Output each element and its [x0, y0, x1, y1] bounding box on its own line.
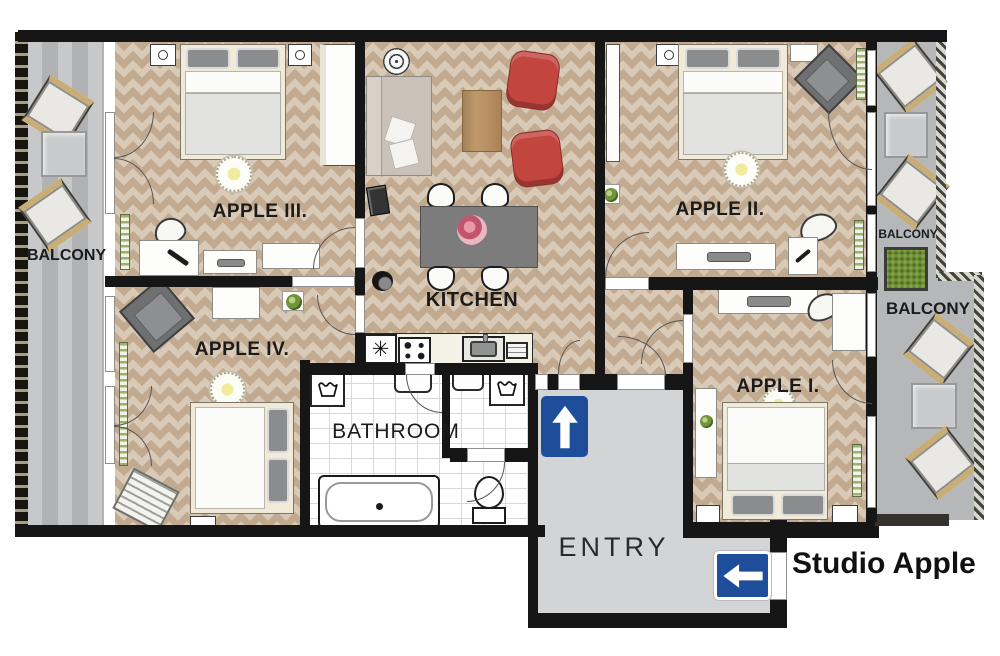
left-arrow-sign — [714, 551, 771, 600]
shelf — [262, 243, 320, 269]
wardrobe — [320, 44, 356, 166]
desk — [718, 289, 818, 314]
wall — [450, 448, 467, 462]
wall — [442, 368, 450, 458]
radiator — [854, 220, 864, 270]
balcony-table — [884, 112, 928, 158]
nightstand — [832, 505, 858, 523]
shelf — [695, 388, 717, 478]
up-arrow-sign — [541, 396, 588, 457]
balcony-railing — [15, 32, 28, 537]
room-label-kitchen: KITCHEN — [392, 289, 552, 312]
tray — [707, 252, 751, 262]
table — [212, 287, 260, 319]
potted-plant-icon — [604, 188, 618, 202]
plant-stand — [282, 291, 304, 311]
room-label-apple-iv: APPLE IV. — [162, 339, 322, 361]
tv — [366, 185, 390, 217]
sofa — [366, 76, 432, 176]
nightstand — [288, 44, 312, 66]
balcony-edge — [875, 514, 949, 526]
fridge-icon: ✳ — [372, 337, 390, 362]
armchair-seat — [805, 58, 850, 103]
window — [105, 296, 115, 372]
ceiling-light-icon — [383, 48, 410, 75]
microwave — [506, 342, 528, 359]
nightstand — [150, 44, 176, 66]
radiator — [852, 444, 862, 497]
wall — [595, 42, 605, 383]
kitchen-sink — [462, 336, 505, 362]
mattress — [683, 71, 783, 93]
potted-plant-icon — [286, 294, 302, 310]
dresser — [203, 250, 257, 274]
double-bed — [190, 402, 294, 514]
red-armchair — [504, 49, 561, 112]
sofa-pillow — [388, 138, 420, 170]
planter-box — [884, 247, 928, 291]
potted-plant-icon — [700, 415, 713, 428]
radiator — [856, 48, 866, 100]
room-label-apple-iii: APPLE III. — [170, 201, 350, 223]
coffee-table — [462, 90, 502, 152]
window — [867, 50, 876, 106]
pillow — [236, 48, 280, 69]
dining-table — [420, 206, 538, 268]
double-bed — [722, 402, 828, 520]
door-opening — [683, 314, 693, 363]
nightstand — [696, 505, 720, 523]
door-knob-icon — [372, 271, 393, 291]
toilet-tank — [472, 507, 506, 524]
mattress — [727, 407, 825, 467]
wall — [355, 42, 365, 218]
red-armchair — [509, 128, 565, 189]
wardrobe — [606, 44, 620, 162]
washing-machine — [489, 370, 525, 406]
room-label-bathroom: BATHROOM — [316, 420, 476, 444]
wall — [528, 613, 787, 628]
window — [867, 293, 876, 357]
plan-title: Studio Apple — [792, 547, 998, 581]
wall — [18, 30, 947, 42]
stove — [398, 337, 431, 364]
fridge: ✳ — [364, 334, 397, 364]
door-opening — [535, 374, 548, 390]
wall — [580, 374, 617, 390]
desk-lamp-icon — [167, 249, 190, 267]
door-opening — [292, 276, 355, 287]
pillow — [781, 494, 825, 516]
double-bed — [678, 44, 788, 160]
wall — [548, 374, 558, 390]
dining-chair — [427, 183, 455, 208]
wall — [300, 360, 310, 527]
wall — [505, 448, 532, 462]
room-label-balcony-left: BALCONY — [24, 247, 109, 265]
balcony-table — [911, 383, 957, 429]
bathtub-inner — [325, 482, 433, 522]
desk-lamp-icon — [795, 249, 811, 264]
desk — [676, 243, 776, 270]
room-label-balcony-right: BALCONY — [878, 299, 978, 319]
room-label-balcony-top-right: BALCONY — [876, 227, 940, 241]
pillow — [731, 494, 775, 516]
wall — [15, 525, 310, 537]
sofa-arm — [367, 77, 382, 175]
window — [867, 214, 876, 272]
wall — [355, 333, 365, 365]
sink-basin — [470, 341, 497, 357]
floor-plan: ✳ — [0, 0, 1000, 656]
speaker-icon — [158, 50, 168, 60]
door-opening — [617, 374, 665, 390]
blanket — [683, 93, 783, 155]
speaker-icon — [295, 50, 305, 60]
double-bed — [180, 44, 286, 160]
balcony-railing-zigzag — [936, 42, 946, 278]
up-arrow-icon — [548, 403, 582, 451]
door-opening — [355, 218, 365, 268]
door-opening — [355, 295, 365, 333]
wall — [770, 520, 787, 552]
washing-machine — [310, 371, 345, 407]
mattress — [195, 407, 265, 509]
pillow — [685, 48, 730, 69]
pillow — [267, 408, 289, 453]
pillow — [267, 458, 289, 503]
bathtub — [318, 475, 440, 529]
pillow — [736, 48, 781, 69]
blanket — [727, 463, 825, 491]
room-label-apple-i: APPLE I. — [698, 376, 858, 398]
radiator — [120, 214, 130, 270]
tray — [747, 296, 791, 307]
wall — [355, 268, 365, 295]
room-label-apple-ii: APPLE II. — [640, 199, 800, 221]
door-opening — [558, 374, 580, 390]
door-opening — [467, 448, 505, 462]
door-opening — [605, 277, 649, 290]
mattress — [185, 71, 281, 93]
room-label-entry: ENTRY — [533, 532, 695, 563]
balcony-table — [41, 131, 87, 177]
window — [867, 416, 876, 508]
speaker-icon — [664, 50, 674, 60]
desk — [139, 240, 199, 276]
side-desk — [832, 293, 866, 351]
dining-chair — [481, 183, 509, 208]
left-arrow-icon — [721, 560, 765, 592]
wall — [300, 525, 545, 537]
faucet-icon — [376, 503, 383, 510]
wall — [683, 283, 693, 314]
pillow — [186, 48, 230, 69]
tray — [217, 259, 245, 267]
door-opening — [405, 363, 435, 375]
entry-door — [770, 552, 787, 600]
chandelier-icon — [216, 156, 252, 192]
side-desk — [788, 237, 818, 275]
blanket — [185, 93, 281, 155]
flower-centerpiece — [457, 215, 487, 245]
chandelier-icon — [724, 152, 759, 187]
faucet-icon — [483, 334, 488, 342]
laundry-tub-icon — [495, 376, 519, 400]
wall — [665, 374, 685, 390]
wall — [105, 276, 292, 287]
laundry-tub-icon — [316, 377, 340, 401]
wall — [770, 600, 787, 627]
